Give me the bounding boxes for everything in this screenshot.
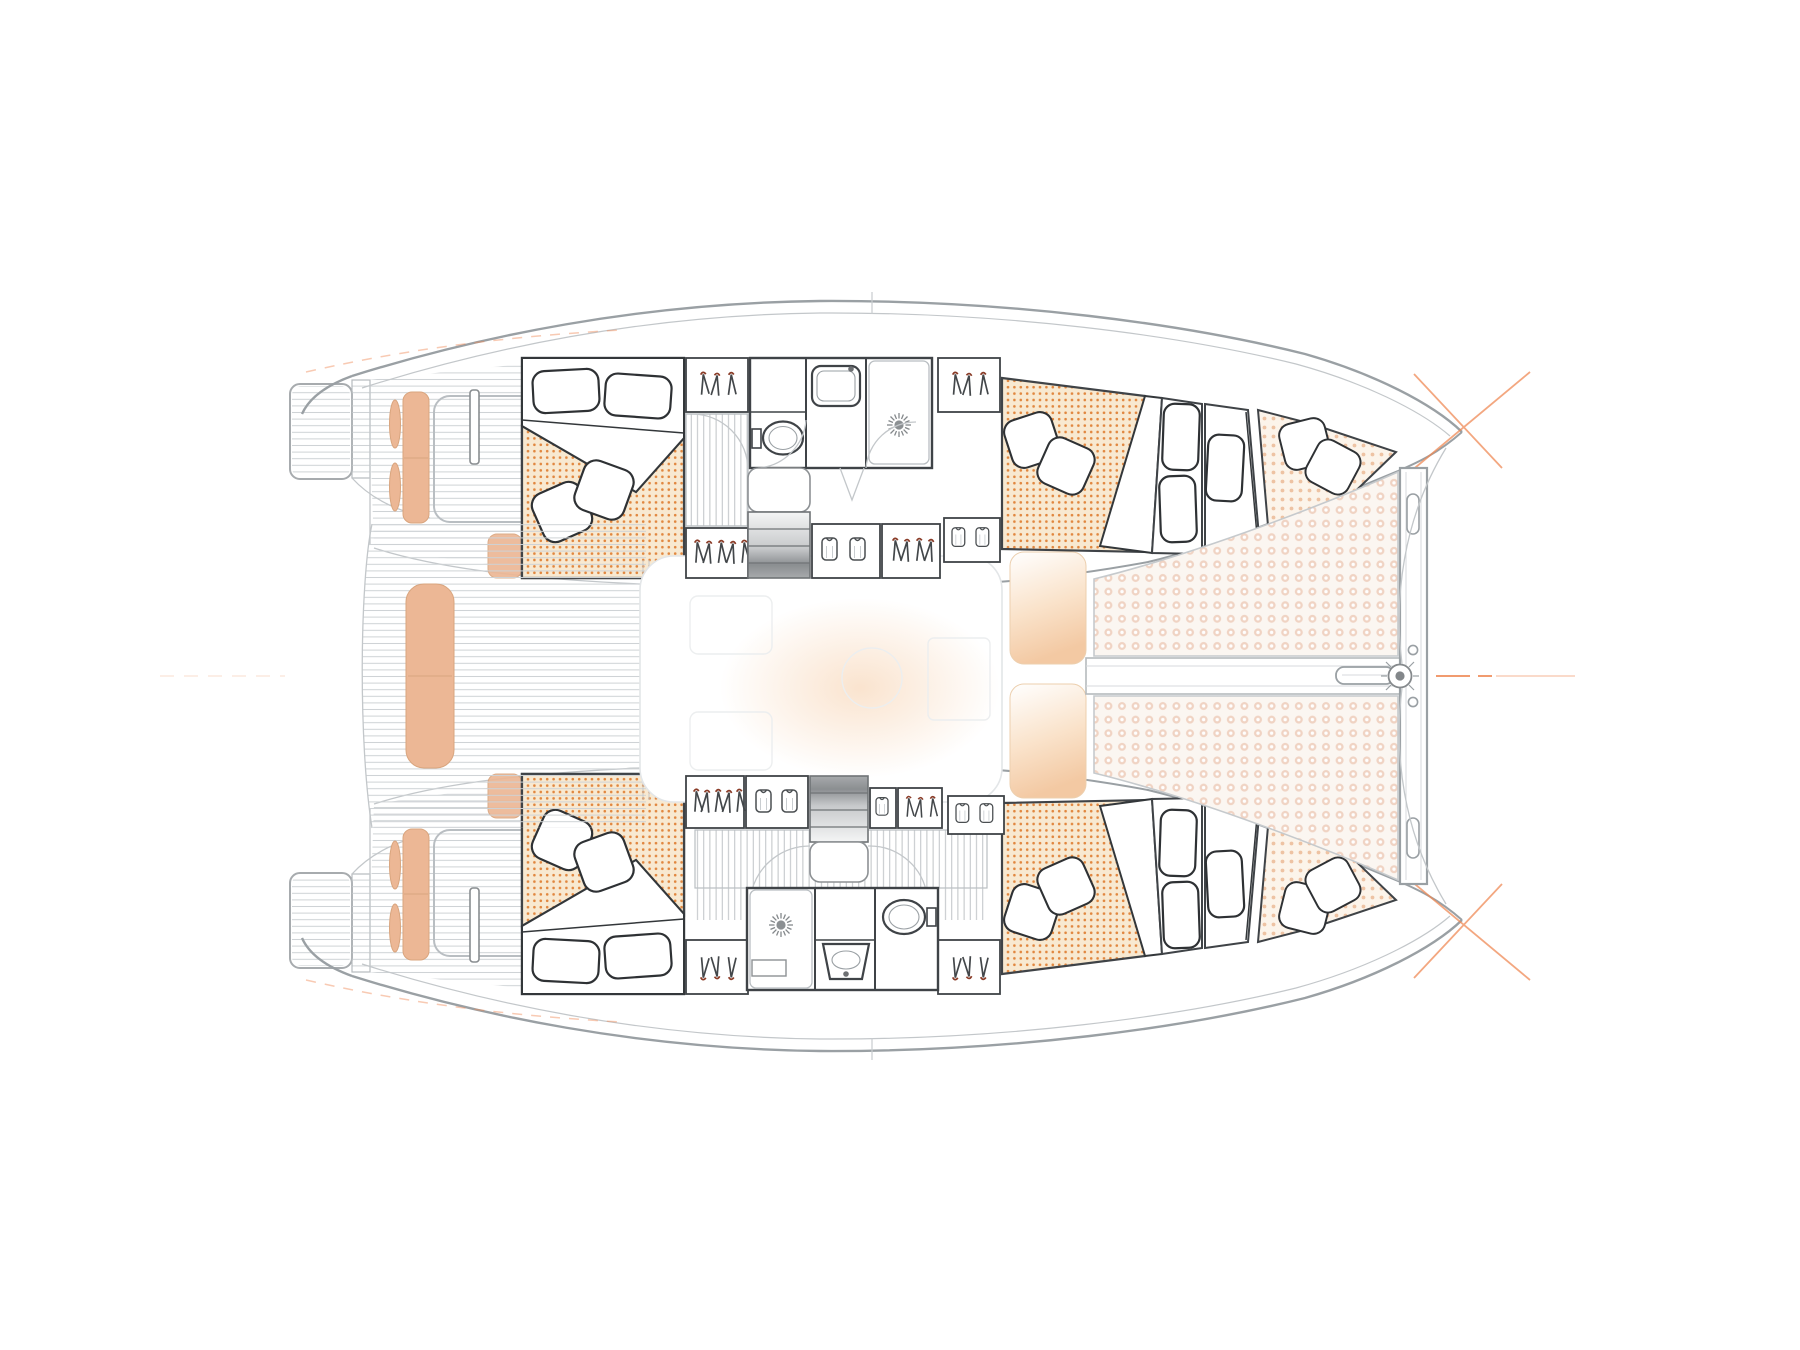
foredeck-lounge-pad (1010, 552, 1086, 664)
shirt-cubby (944, 518, 1000, 562)
wardrobe-hangers (686, 528, 750, 578)
beam-hole (1408, 645, 1417, 654)
door-fold (840, 468, 864, 500)
forestay-hub (1381, 657, 1419, 695)
salon-warm-glow (720, 598, 1000, 778)
faucet (848, 366, 854, 372)
corridor-floor (695, 888, 745, 920)
shirt-cubby (746, 776, 808, 828)
shirt-cubby (948, 796, 1004, 834)
corridor-floor (940, 888, 987, 920)
floorplan-canvas: Catamaran interior layout — top-view flo… (0, 0, 1800, 1350)
shirt-cubby (812, 524, 880, 578)
bathroom (747, 888, 938, 990)
foredeck-lounge-pad (1010, 684, 1086, 798)
shower-bench (752, 960, 786, 976)
beam-hole (1408, 697, 1417, 706)
cockpit (362, 524, 649, 828)
shirt-cubby (870, 788, 896, 828)
beam-slot (1407, 494, 1419, 534)
faucet (843, 971, 849, 977)
wardrobe-hangers (882, 524, 940, 578)
wardrobe-hangers (686, 776, 745, 828)
salon-ghost (640, 556, 1002, 802)
beam-slot (1407, 818, 1419, 858)
corridor-floor (686, 414, 748, 526)
companionway-stairs (810, 776, 868, 882)
floorplan-page: Catamaran interior layout — top-view flo… (0, 0, 1800, 1350)
cockpit-planking (362, 524, 646, 828)
shower-drain-icon (769, 913, 793, 937)
sink (812, 366, 860, 406)
companionway-stairs (748, 468, 810, 578)
wardrobe-hangers (898, 788, 942, 828)
